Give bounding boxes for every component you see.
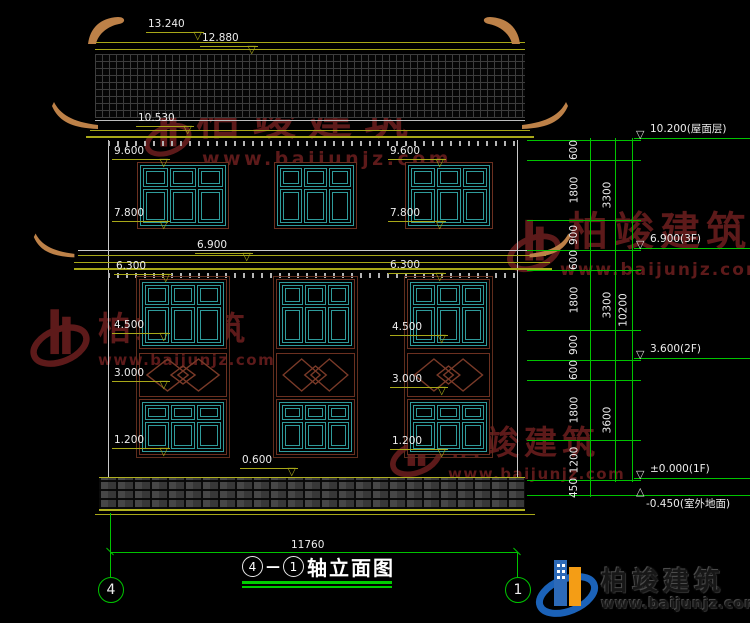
window-pane-inner (148, 288, 166, 302)
gf-bay-right (404, 276, 493, 458)
roof-eave-line (90, 130, 530, 131)
window-pane (463, 168, 487, 187)
gf-upper-window (407, 279, 490, 349)
window-pane-inner (285, 288, 300, 302)
window-pane-inner (465, 288, 481, 302)
title-axis-b: 1 (283, 556, 304, 577)
window-pane (437, 405, 459, 420)
window-pane-inner (332, 192, 348, 220)
elevation-mark: 4.500▽ (390, 322, 448, 336)
gf-lower-window (276, 399, 355, 455)
title-underline (242, 581, 392, 584)
company-name: 柏竣建筑 (601, 561, 725, 598)
elevation-mark: 10.530▽ (136, 113, 194, 127)
window-pane-inner (416, 288, 432, 302)
window-pane (171, 285, 195, 305)
elevation-mark: 3.000▽ (390, 374, 448, 388)
window-pane-inner (307, 192, 323, 220)
window-pane-inner (283, 192, 299, 220)
title-underline (242, 586, 392, 588)
roof-eave-line (86, 136, 534, 138)
window-pane (462, 307, 484, 343)
window-pane-inner (331, 425, 346, 446)
elevation-mark: 1.200▽ (390, 436, 448, 450)
window-pane-inner (174, 288, 192, 302)
window-pane-inner (200, 425, 218, 446)
title-axis-a: 4 (242, 556, 263, 577)
window-pane (462, 285, 484, 305)
window-pane (171, 422, 195, 449)
window-pane (197, 307, 221, 343)
window-pane (462, 422, 484, 449)
window-pane (305, 285, 326, 305)
elevation-mark: 6.300▽ (388, 260, 446, 274)
window-pane-inner (308, 310, 323, 340)
elevation-mark: 6.900▽ (195, 240, 253, 254)
eave-corner-ornament-icon (520, 98, 568, 132)
window-pane-inner (466, 192, 484, 220)
ground-level-marker: △ -0.450(室外地面) (634, 495, 750, 510)
window-pane-inner (465, 425, 481, 446)
mid-eave-line (78, 250, 546, 251)
window-pane (171, 405, 195, 420)
window-pane-inner (414, 171, 432, 184)
window-pane-inner (283, 171, 299, 184)
window-pane-inner (308, 425, 323, 446)
window-pane (145, 285, 169, 305)
elevation-mark: 12.880▽ (200, 33, 258, 47)
window-pane (198, 168, 223, 187)
window-pane-inner (174, 310, 192, 340)
eave-corner-ornament-icon (30, 230, 80, 260)
window-pane-inner (174, 425, 192, 446)
chain-segment: 1800 (566, 160, 582, 220)
level-marker: ▽6.900(3F) (634, 234, 750, 249)
window-pane (413, 285, 435, 305)
window-pane (171, 307, 195, 343)
window-pane (328, 422, 349, 449)
window-pane (198, 189, 223, 223)
extension-line (527, 480, 641, 481)
gf-bay-left (136, 276, 230, 458)
window-pane (143, 168, 168, 187)
window-pane (437, 168, 461, 187)
window-pane (463, 189, 487, 223)
mid-eave-line (78, 255, 546, 256)
diamond-lattice-icon (277, 354, 354, 396)
chain-segment: 900 (566, 330, 582, 360)
window-pane (282, 307, 303, 343)
ground-line (95, 514, 535, 515)
window-pane-inner (331, 288, 346, 302)
ridge-ornament-icon (84, 14, 130, 46)
axis-grid-line-1 (517, 552, 518, 577)
window-pane-inner (173, 171, 192, 184)
window-pane-inner (440, 171, 458, 184)
chain-segment: 1800 (566, 380, 582, 440)
window-pane-inner (331, 310, 346, 340)
window-grid (410, 282, 487, 346)
window-grid (279, 402, 352, 452)
title-dash: — (266, 559, 280, 575)
chain-segment: 1800 (566, 270, 582, 330)
window-pane (305, 422, 326, 449)
stone-plinth (99, 477, 525, 511)
dimension-line (632, 138, 633, 482)
elevation-mark: 9.600▽ (388, 146, 446, 160)
window-pane-inner (440, 408, 456, 417)
window-pane (170, 168, 195, 187)
window-pane (282, 405, 303, 420)
window-pane-inner (285, 425, 300, 446)
window-pane-inner (200, 408, 218, 417)
axis-grid-line-4 (110, 513, 111, 577)
window-pane (282, 422, 303, 449)
company-logo-icon (535, 555, 599, 619)
window-pane (413, 405, 435, 420)
window-pane-inner (146, 171, 165, 184)
window-pane-inner (173, 192, 192, 220)
window-pane-inner (201, 192, 220, 220)
wall-right-edge (517, 140, 518, 477)
window-grid (142, 282, 224, 346)
window-grid (277, 165, 354, 226)
roof-tile-pattern (95, 54, 525, 118)
roof-ridge-line (95, 42, 525, 43)
window-pane (329, 168, 351, 187)
elevation-drawing-canvas: 柏竣建筑 www.baijunjz.com 柏竣建筑 www.baijunjz.… (0, 0, 750, 623)
window-pane (282, 285, 303, 305)
chain-segment: 600 (566, 140, 582, 160)
window-pane (304, 168, 326, 187)
diamond-lattice-panel (276, 353, 355, 397)
wall-left-edge (108, 140, 109, 477)
level-marker: ▽±0.000(1F) (634, 464, 750, 479)
window-pane-inner (440, 288, 456, 302)
window-pane (280, 168, 302, 187)
company-logo: 柏竣建筑 www.baijunjz.com (535, 553, 750, 621)
extension-line (527, 495, 641, 496)
ridge-ornament-icon (478, 14, 524, 46)
chain-segment: 3300 (599, 140, 615, 250)
window-pane (411, 168, 435, 187)
elevation-mark: 7.800▽ (388, 208, 446, 222)
elevation-mark: 4.500▽ (112, 320, 170, 334)
window-pane (329, 189, 351, 223)
company-url: www.baijunjz.com (601, 596, 750, 612)
window-pane (305, 405, 326, 420)
window-pane-inner (200, 310, 218, 340)
title-text: 轴立面图 (307, 552, 395, 581)
gf-upper-window (276, 279, 355, 349)
chain-segment: 600 (566, 250, 582, 270)
window-pane (328, 307, 349, 343)
window-pane (145, 405, 169, 420)
window-pane-inner (416, 408, 432, 417)
axis-bubble-4: 4 (98, 577, 124, 603)
level-marker: ▽10.200(屋面层) (634, 124, 750, 139)
window-pane-inner (465, 408, 481, 417)
window-pane (197, 285, 221, 305)
dimension-line (590, 138, 591, 497)
window-pane-inner (148, 408, 166, 417)
roof-ridge-line (95, 49, 525, 50)
elevation-mark: 13.240▽ (146, 19, 204, 33)
drawing-title: 4 — 1 轴立面图 (242, 552, 395, 581)
window-pane (304, 189, 326, 223)
window-pane-inner (201, 171, 220, 184)
axis-bubble-1: 1 (505, 577, 531, 603)
elevation-mark: 1.200▽ (112, 435, 170, 449)
window-pane-inner (200, 288, 218, 302)
elevation-mark: 3.000▽ (112, 368, 170, 382)
window-pane (328, 405, 349, 420)
elevation-mark: 7.800▽ (112, 208, 170, 222)
window-pane-inner (331, 408, 346, 417)
window-pane-inner (285, 310, 300, 340)
window-pane (280, 189, 302, 223)
chain-segment: 450 (566, 480, 582, 495)
window-pane-inner (332, 171, 348, 184)
window-pane (305, 307, 326, 343)
chain-segment: 900 (566, 220, 582, 250)
window-pane-inner (285, 408, 300, 417)
bottom-dimension-value: 11760 (291, 539, 324, 551)
gf-bay-middle (273, 276, 358, 458)
watermark-logo-icon (28, 302, 92, 372)
window-pane (437, 285, 459, 305)
window-pane-inner (466, 171, 484, 184)
window-2f-middle (274, 162, 357, 229)
window-pane-inner (174, 408, 192, 417)
window-pane (462, 405, 484, 420)
window-pane (197, 405, 221, 420)
window-pane (170, 189, 195, 223)
chain-segment: 10200 (616, 140, 632, 480)
elevation-mark: 0.600▽ (240, 455, 298, 469)
eave-corner-ornament-icon (52, 98, 100, 132)
window-pane (197, 422, 221, 449)
window-pane-inner (307, 171, 323, 184)
window-pane (328, 285, 349, 305)
chain-segment: 3600 (599, 360, 615, 480)
window-pane-inner (308, 288, 323, 302)
elevation-mark: 6.300▽ (114, 261, 172, 275)
chain-segment: 1200 (566, 440, 582, 480)
elevation-mark: 9.600▽ (112, 146, 170, 160)
chain-segment: 3300 (599, 250, 615, 360)
window-grid (279, 282, 352, 346)
window-pane-inner (308, 408, 323, 417)
gf-upper-window (139, 279, 227, 349)
chain-segment: 600 (566, 360, 582, 380)
window-pane-inner (465, 310, 481, 340)
level-marker: ▽3.600(2F) (634, 344, 750, 359)
